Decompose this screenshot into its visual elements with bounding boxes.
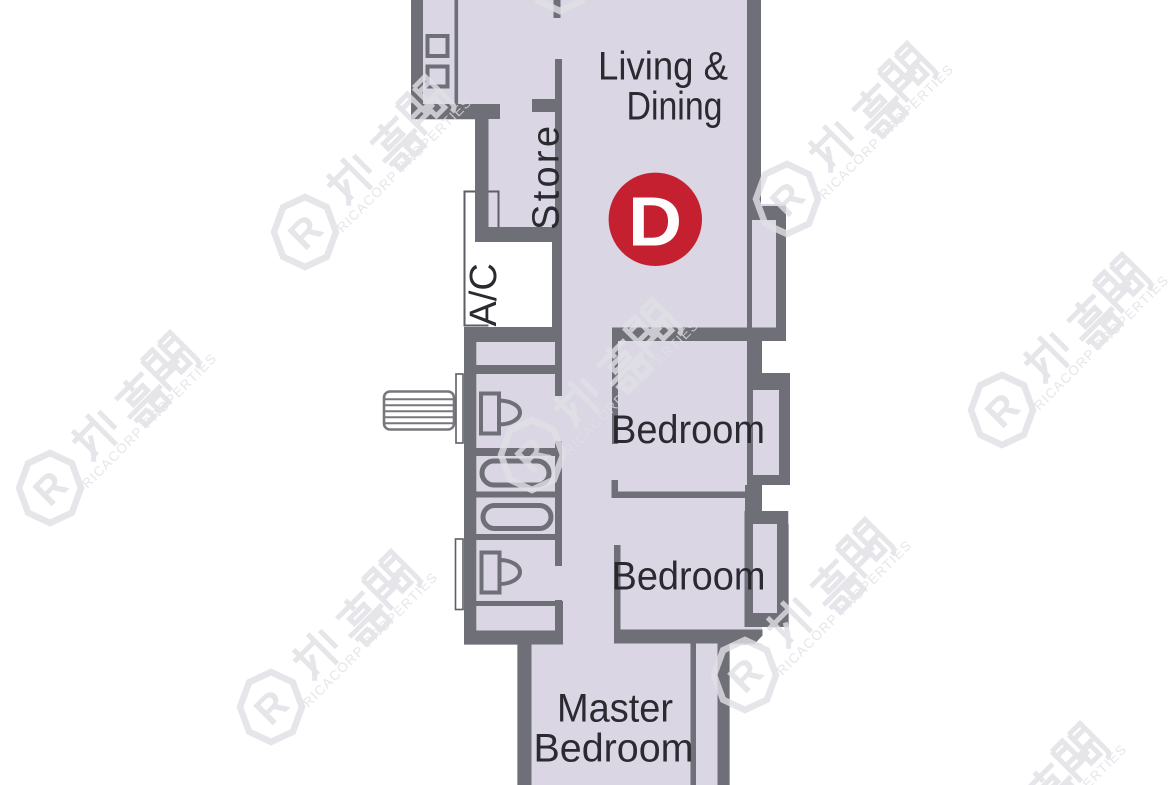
svg-text:A/C: A/C xyxy=(463,263,505,326)
svg-text:Master: Master xyxy=(557,686,673,730)
svg-text:Bedroom: Bedroom xyxy=(611,408,765,452)
svg-text:Bedroom: Bedroom xyxy=(612,555,766,599)
svg-text:Dining: Dining xyxy=(627,85,723,129)
svg-text:D: D xyxy=(628,183,682,261)
svg-text:Living &: Living & xyxy=(598,45,728,89)
svg-text:Store: Store xyxy=(526,126,568,230)
svg-text:Bedroom: Bedroom xyxy=(534,726,694,770)
